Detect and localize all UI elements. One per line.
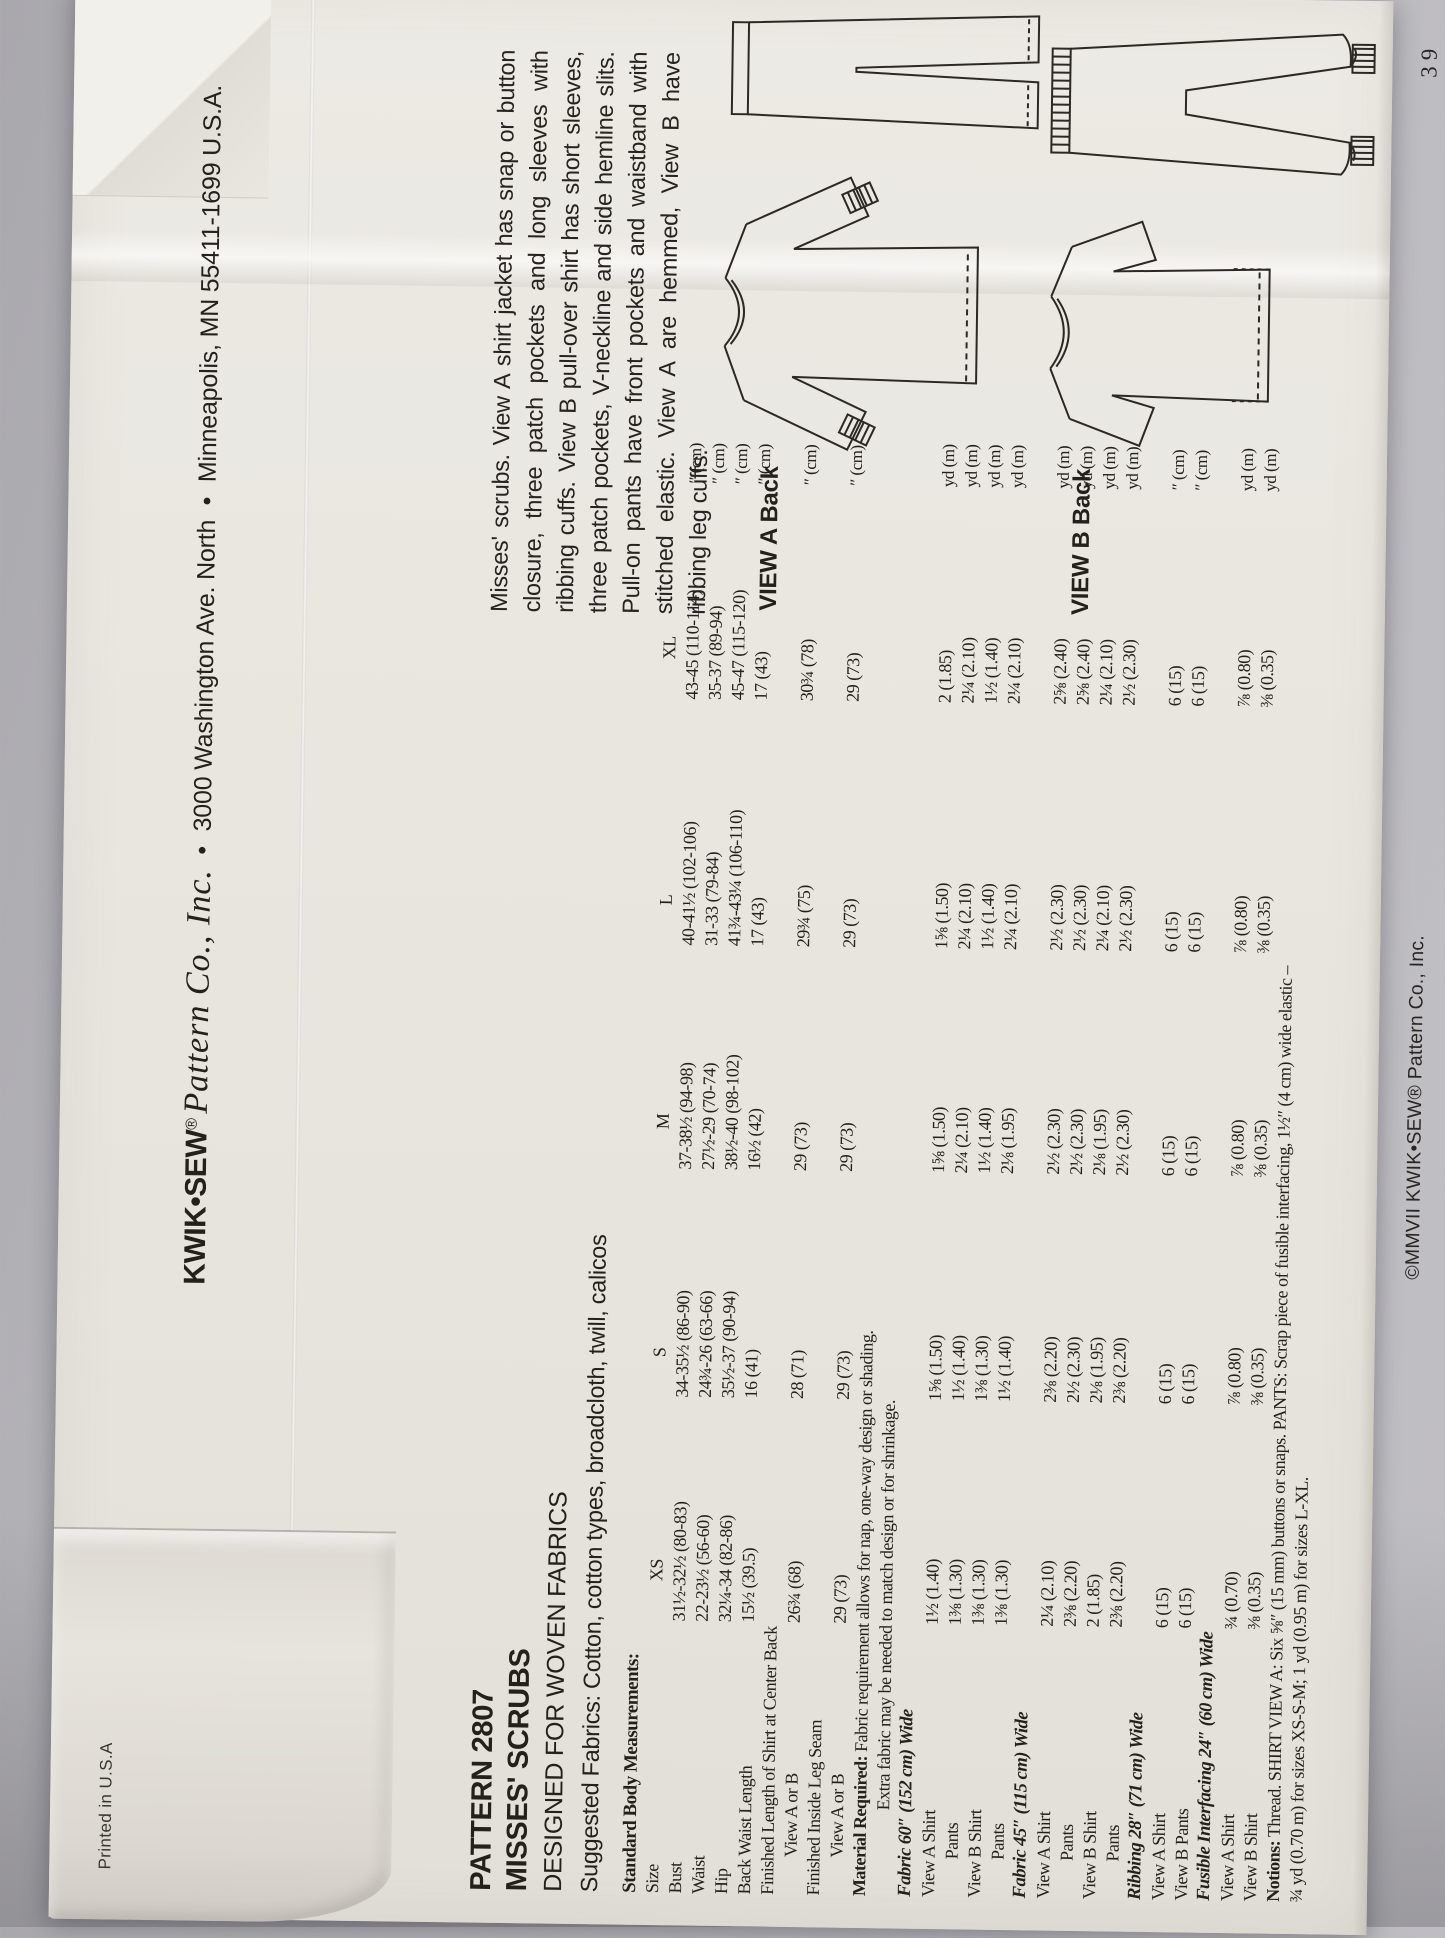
size-value: ⅞ (0.80) [1234, 491, 1258, 707]
size-value: 35½-37 (90-94) [718, 1170, 742, 1398]
size-value: 1⅝ (1.50) [931, 703, 955, 949]
size-value: 2⅜ (2.20) [1106, 1403, 1130, 1627]
size-value: 2 (1.85) [935, 487, 959, 703]
size-value: ⅜ (0.35) [1250, 953, 1274, 1177]
size-value: 16½ (42) [744, 946, 768, 1170]
size-value: 45-47 (115-120) [728, 484, 752, 700]
size-value: 2½ (2.30) [1063, 1175, 1087, 1403]
row-label: View B Pants [1171, 1628, 1196, 1900]
size-value: 2¼ (2.10) [1096, 489, 1120, 705]
row-label: View B Shirt [964, 1626, 989, 1898]
size-value: M [652, 945, 676, 1169]
size-value: 26¾ (68) [784, 1399, 808, 1623]
size-value: 2½ (2.30) [1046, 705, 1070, 951]
size-value: 1½ (1.40) [977, 704, 1001, 950]
page-number: 39 [1416, 43, 1442, 78]
size-value: 6 (15) [1188, 491, 1212, 707]
size-value: ¾ (0.70) [1221, 1405, 1245, 1629]
row-label: Pants [987, 1626, 1012, 1898]
size-value: 24¾-26 (63-66) [695, 1170, 719, 1398]
row-label: Size [642, 1621, 667, 1893]
size-value: 41¾-43¼ (106-110) [724, 700, 748, 946]
size-value: 1½ (1.40) [994, 1174, 1018, 1402]
size-value: 6 (15) [1165, 490, 1189, 706]
brand-logo-text: KWIK•SEW [178, 1130, 213, 1285]
size-value: ⅞ (0.80) [1227, 953, 1251, 1177]
registered-mark: ® [184, 1118, 201, 1130]
size-value: 1⅜ (1.30) [968, 1402, 992, 1626]
size-value: 6 (15) [1181, 952, 1205, 1176]
row-label: View A Shirt [1033, 1626, 1058, 1898]
size-value: 6 (15) [1155, 1176, 1179, 1404]
size-value: 2⅜ (2.20) [1109, 1175, 1133, 1403]
pattern-envelope: Printed in U.S.A KWIK•SEW® Pattern Co., … [49, 0, 1394, 1935]
size-value: 2½ (2.30) [1112, 952, 1136, 1176]
size-value: 2½ (2.30) [1043, 951, 1067, 1175]
row-label: View B Shirt [1240, 1629, 1265, 1901]
row-label: Waist [688, 1622, 713, 1894]
size-value: 2⅛ (1.95) [997, 950, 1021, 1174]
row-label: View A Shirt [1148, 1628, 1173, 1900]
row-label: View A Shirt [1217, 1629, 1242, 1901]
size-value: 34-35½ (86-90) [672, 1169, 696, 1397]
row-label: View A Shirt [918, 1625, 943, 1897]
size-value: 1½ (1.40) [981, 488, 1005, 704]
street-address: 3000 Washington Ave. North [189, 520, 221, 832]
size-value: 29 (73) [833, 1172, 857, 1400]
size-value: 40-41½ (102-106) [678, 699, 702, 945]
size-value: 30¾ (78) [797, 485, 821, 701]
city-address: Minneapolis, MN 55411-1699 U.S.A. [194, 85, 228, 483]
size-value: 2¼ (2.10) [958, 487, 982, 703]
size-value: 38½-40 (98-102) [721, 946, 745, 1170]
header-bullet-2: • [193, 486, 221, 515]
size-value: 16 (41) [741, 1170, 765, 1398]
size-value: 2½ (2.30) [1066, 951, 1090, 1175]
size-value: 22-23½ (56-60) [692, 1398, 716, 1622]
size-value: ⅞ (0.80) [1230, 707, 1254, 953]
size-value: 2¼ (2.10) [1004, 488, 1028, 704]
title-block: PATTERN 2807 MISSES' SCRUBS DESIGNED FOR… [463, 1233, 616, 1893]
size-value: 29 (73) [790, 947, 814, 1171]
size-value: 2¼ (2.10) [954, 703, 978, 949]
size-value: 2¼ (2.10) [1000, 704, 1024, 950]
row-label: View B Shirt [1079, 1627, 1104, 1899]
view-b-shirt-back-drawing [1035, 192, 1289, 475]
size-value: 6 (15) [1158, 952, 1182, 1176]
size-value: 1⅜ (1.30) [945, 1401, 969, 1625]
size-value: 6 (15) [1175, 1404, 1199, 1628]
row-label: Pants [1056, 1627, 1081, 1899]
size-value: ⅜ (0.35) [1253, 707, 1277, 953]
row-label: Bust [665, 1621, 690, 1893]
size-value: 29¾ (75) [793, 701, 817, 947]
view-a-shirt-back-drawing [707, 162, 996, 466]
size-value: 28 (71) [787, 1171, 811, 1399]
size-value: 2⅛ (1.95) [1089, 951, 1113, 1175]
size-value: ⅜ (0.35) [1244, 1405, 1268, 1629]
row-label: View A or B [826, 1624, 851, 1896]
size-value: 2⅜ (2.20) [1040, 1175, 1064, 1403]
row-label: Pants [941, 1625, 966, 1897]
size-value: ⅜ (0.35) [1247, 1177, 1271, 1405]
size-value: 2½ (2.30) [1115, 706, 1139, 952]
envelope-back-content: KWIK•SEW® Pattern Co., Inc. • 3000 Washi… [115, 0, 1445, 1920]
measurement-table: Standard Body Measurements:SizeXSSMLXLBu… [619, 357, 1330, 1902]
size-value: 1½ (1.40) [948, 1173, 972, 1401]
size-value: XS [646, 1397, 670, 1621]
size-value: 37-38½ (94-98) [675, 945, 699, 1169]
size-value: 1⅝ (1.50) [928, 949, 952, 1173]
size-value: 2¼ (2.10) [951, 949, 975, 1173]
photo-of-pattern-envelope: { "colors":{"paper":"#e9e6e0","backgroun… [0, 0, 1445, 1927]
row-label: Pants [1102, 1627, 1127, 1899]
copyright-line: ©MMVII KWIK•SEW® Pattern Co., Inc. [1402, 935, 1430, 1280]
size-value: 29 (73) [830, 1400, 854, 1624]
size-value: 27½-29 (70-74) [698, 946, 722, 1170]
publisher-header: KWIK•SEW® Pattern Co., Inc. • 3000 Washi… [175, 85, 230, 1285]
unit-cell: yd (m) [1008, 370, 1030, 488]
size-value: 29 (73) [836, 948, 860, 1172]
printed-in-usa-text: Printed in U.S.A [95, 1742, 117, 1870]
size-value: 1½ (1.40) [922, 1401, 946, 1625]
size-value: 6 (15) [1152, 1404, 1176, 1628]
view-a-pants-back-drawing [725, 0, 1057, 143]
row-label: Hip [711, 1622, 736, 1894]
size-value: 2¼ (2.10) [1092, 705, 1116, 951]
size-value: 29 (73) [843, 486, 867, 702]
view-b-back-label: VIEW B Back [1067, 469, 1097, 615]
row-label: View A or B [780, 1623, 805, 1895]
ribbing-waistband [1051, 49, 1070, 153]
view-b-pants-back-drawing [1045, 10, 1397, 195]
view-a-back-label: VIEW A Back [755, 466, 785, 611]
size-value: 29 (73) [839, 702, 863, 948]
size-value: 2 (1.85) [1083, 1403, 1107, 1627]
size-value: 6 (15) [1178, 1176, 1202, 1404]
size-value: S [649, 1169, 673, 1397]
size-value: L [655, 699, 679, 945]
size-value: 31½-32½ (80-83) [669, 1397, 693, 1621]
size-value: 17 (43) [747, 700, 771, 946]
garment-description: Misses' scrubs. View A shirt jacket has … [483, 50, 722, 615]
header-bullet-1: • [188, 836, 216, 865]
size-value: ⅞ (0.80) [1224, 1177, 1248, 1405]
size-value: 32¼-34 (82-86) [715, 1398, 739, 1622]
size-value: 31-33 (79-84) [701, 700, 725, 946]
size-value: 2⅛ (1.95) [1086, 1175, 1110, 1403]
size-value: 2⅜ (2.20) [1060, 1403, 1084, 1627]
size-value: 15½ (39.5) [738, 1398, 762, 1622]
size-value: 2¼ (2.10) [1037, 1402, 1061, 1626]
brand-script-text: Pattern Co., Inc. [178, 869, 218, 1114]
size-value: 2½ (2.30) [1119, 490, 1143, 706]
size-value: 6 (15) [1161, 706, 1185, 952]
size-value: 1⅜ (1.30) [991, 1402, 1015, 1626]
size-value: 6 (15) [1184, 706, 1208, 952]
size-value: 1⅜ (1.30) [971, 1174, 995, 1402]
size-value: ⅜ (0.35) [1257, 491, 1281, 707]
size-value: 1½ (1.40) [974, 950, 998, 1174]
size-value: 2½ (2.30) [1069, 705, 1093, 951]
row-label: Back Waist Length [734, 1622, 759, 1894]
size-value: 1⅝ (1.50) [925, 1173, 949, 1401]
